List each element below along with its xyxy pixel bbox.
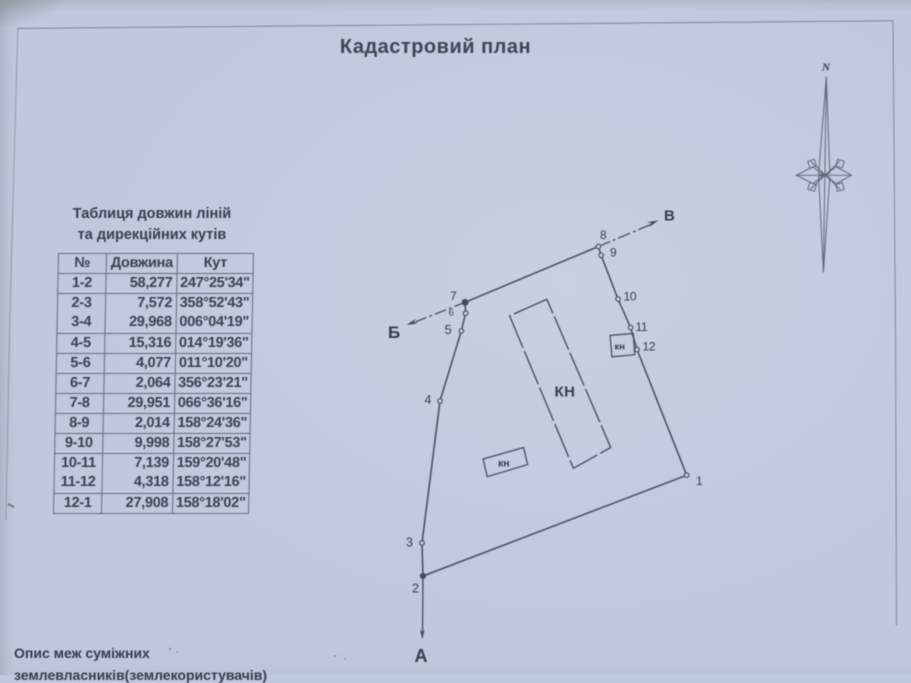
svg-text:6: 6: [449, 308, 454, 319]
svg-text:кн: кн: [615, 342, 626, 353]
svg-text:5: 5: [445, 322, 452, 337]
svg-text:4: 4: [425, 393, 432, 407]
svg-text:В: В: [664, 208, 675, 225]
svg-text:2: 2: [412, 582, 419, 596]
svg-text:А: А: [415, 646, 428, 666]
svg-text:8: 8: [600, 228, 607, 242]
svg-text:1: 1: [696, 474, 703, 488]
svg-text:Б: Б: [388, 323, 400, 342]
svg-text:12: 12: [643, 340, 656, 354]
svg-text:N: N: [821, 62, 831, 74]
svg-text:10: 10: [624, 290, 637, 304]
svg-text:3: 3: [406, 536, 413, 550]
svg-text:9: 9: [610, 246, 617, 260]
svg-text:11: 11: [636, 320, 648, 334]
svg-text:КН: КН: [555, 384, 576, 401]
svg-text:кн: кн: [498, 458, 510, 470]
svg-text:7: 7: [450, 289, 457, 303]
